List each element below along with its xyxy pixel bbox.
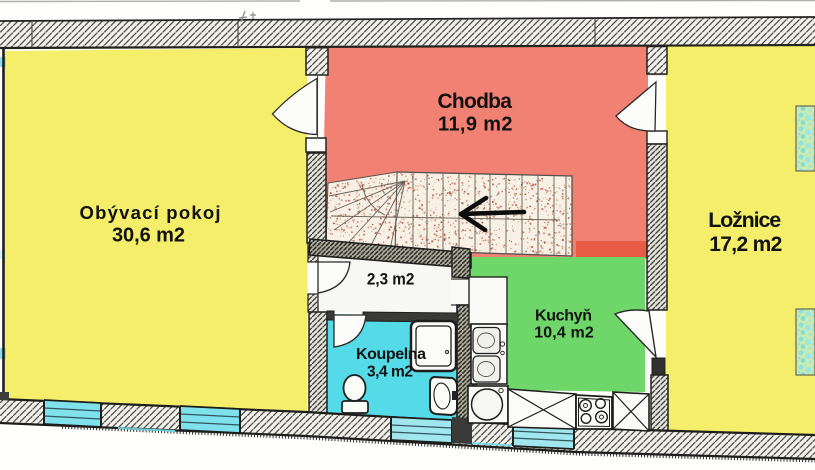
svg-text:Koupelna: Koupelna bbox=[356, 346, 426, 363]
svg-text:Chodba: Chodba bbox=[437, 90, 512, 113]
svg-text:11,9 m2: 11,9 m2 bbox=[438, 114, 513, 136]
svg-text:Obývací pokoj: Obývací pokoj bbox=[80, 202, 221, 223]
svg-text:Ložnice: Ložnice bbox=[708, 208, 781, 232]
svg-text:10,4 m2: 10,4 m2 bbox=[534, 325, 594, 342]
svg-text:Kuchyň: Kuchyň bbox=[535, 308, 592, 325]
svg-text:30,6 m2: 30,6 m2 bbox=[112, 225, 185, 247]
svg-text:3,4 m2: 3,4 m2 bbox=[367, 364, 413, 381]
svg-text:2,3 m2: 2,3 m2 bbox=[367, 270, 415, 289]
svg-text:17,2 m2: 17,2 m2 bbox=[709, 233, 782, 256]
